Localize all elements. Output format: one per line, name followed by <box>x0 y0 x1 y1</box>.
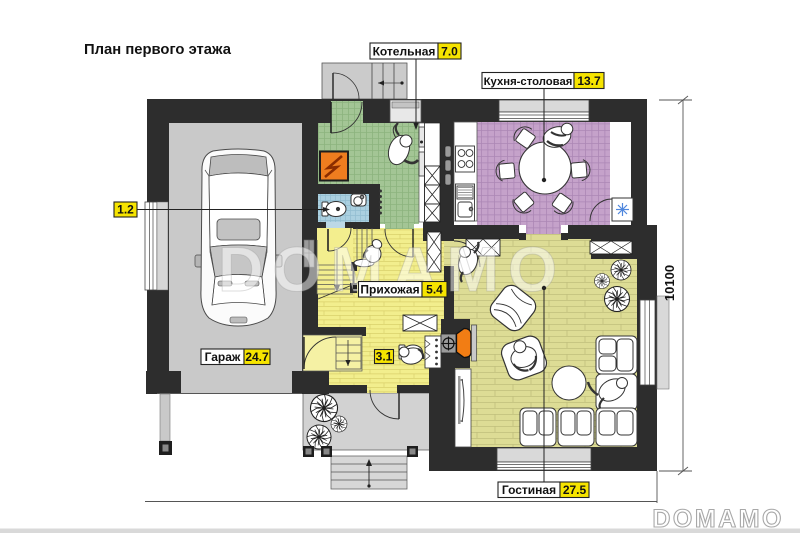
svg-text:24.7: 24.7 <box>245 350 269 364</box>
svg-text:5.4: 5.4 <box>426 283 443 297</box>
svg-text:7.0: 7.0 <box>441 45 458 59</box>
svg-text:Котельная: Котельная <box>373 45 436 59</box>
svg-text:Гараж: Гараж <box>205 350 241 364</box>
svg-text:Гостиная: Гостиная <box>502 483 556 497</box>
svg-text:27.5: 27.5 <box>563 483 587 497</box>
svg-text:3.1: 3.1 <box>376 350 393 364</box>
svg-text:13.7: 13.7 <box>577 74 601 88</box>
svg-text:1.2: 1.2 <box>117 203 134 217</box>
svg-text:10100: 10100 <box>662 265 677 301</box>
svg-text:Кухня-столовая: Кухня-столовая <box>484 76 573 88</box>
svg-text:Прихожая: Прихожая <box>360 283 419 297</box>
svg-text:План первого этажа: План первого этажа <box>84 42 232 58</box>
